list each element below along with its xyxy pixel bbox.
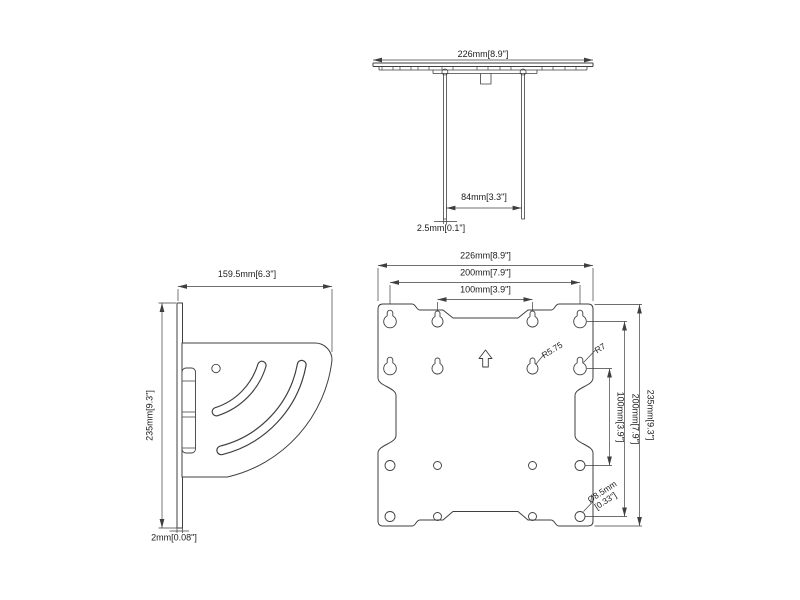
front-view: 226mm[8.9"] 200mm[7.9"] 100mm[3.9"] [378,251,656,527]
technical-drawing: 226mm[8.9"] 84mm[3.3"] 2.5mm[0.1"] 159.5… [0,0,800,600]
top-view: 226mm[8.9"] 84mm[3.3"] 2.5mm[0.1"] [373,49,593,233]
vesa100-v-dimension-label: 100mm[3.9"] [616,392,626,443]
side-view: 159.5mm[6.3"] 235mm[9.3"] 2mm[0.08"] [145,269,333,543]
left-leg [443,74,446,220]
side-depth-dimension-label: 159.5mm[6.3"] [218,269,276,279]
bracket-flange-edge [379,67,587,71]
front-width-dimension-label: 226mm[8.9"] [460,251,511,261]
rear-bar-edge [433,70,537,74]
vesa100-h-dimension-label: 100mm[3.9"] [460,285,511,295]
plate-thickness-label: 2mm[0.08"] [151,533,197,543]
front-height-dimension-label: 235mm[9.3"] [646,390,656,441]
vesa200-h-dimension-label: 200mm[7.9"] [460,268,511,278]
vesa200-v-dimension-label: 200mm[7.9"] [631,394,641,445]
vesa100-h-extensions [438,302,533,313]
leg-span-dimension-label: 84mm[3.3"] [461,192,507,202]
mount-plate-outline [378,304,593,526]
center-tab [481,74,492,85]
leg-thickness-label: 2.5mm[0.1"] [417,223,465,233]
right-leg [522,74,525,220]
wall-plate-edge [373,63,593,67]
bracket-arm-profile [182,343,332,477]
drawing-canvas: 226mm[8.9"] 84mm[3.3"] 2.5mm[0.1"] 159.5… [0,0,800,600]
r7-label: R7 [593,341,608,355]
top-width-dimension-label: 226mm[8.9"] [458,49,509,59]
hole-ticks [382,67,576,71]
side-height-dimension-label: 235mm[9.3"] [145,390,155,441]
